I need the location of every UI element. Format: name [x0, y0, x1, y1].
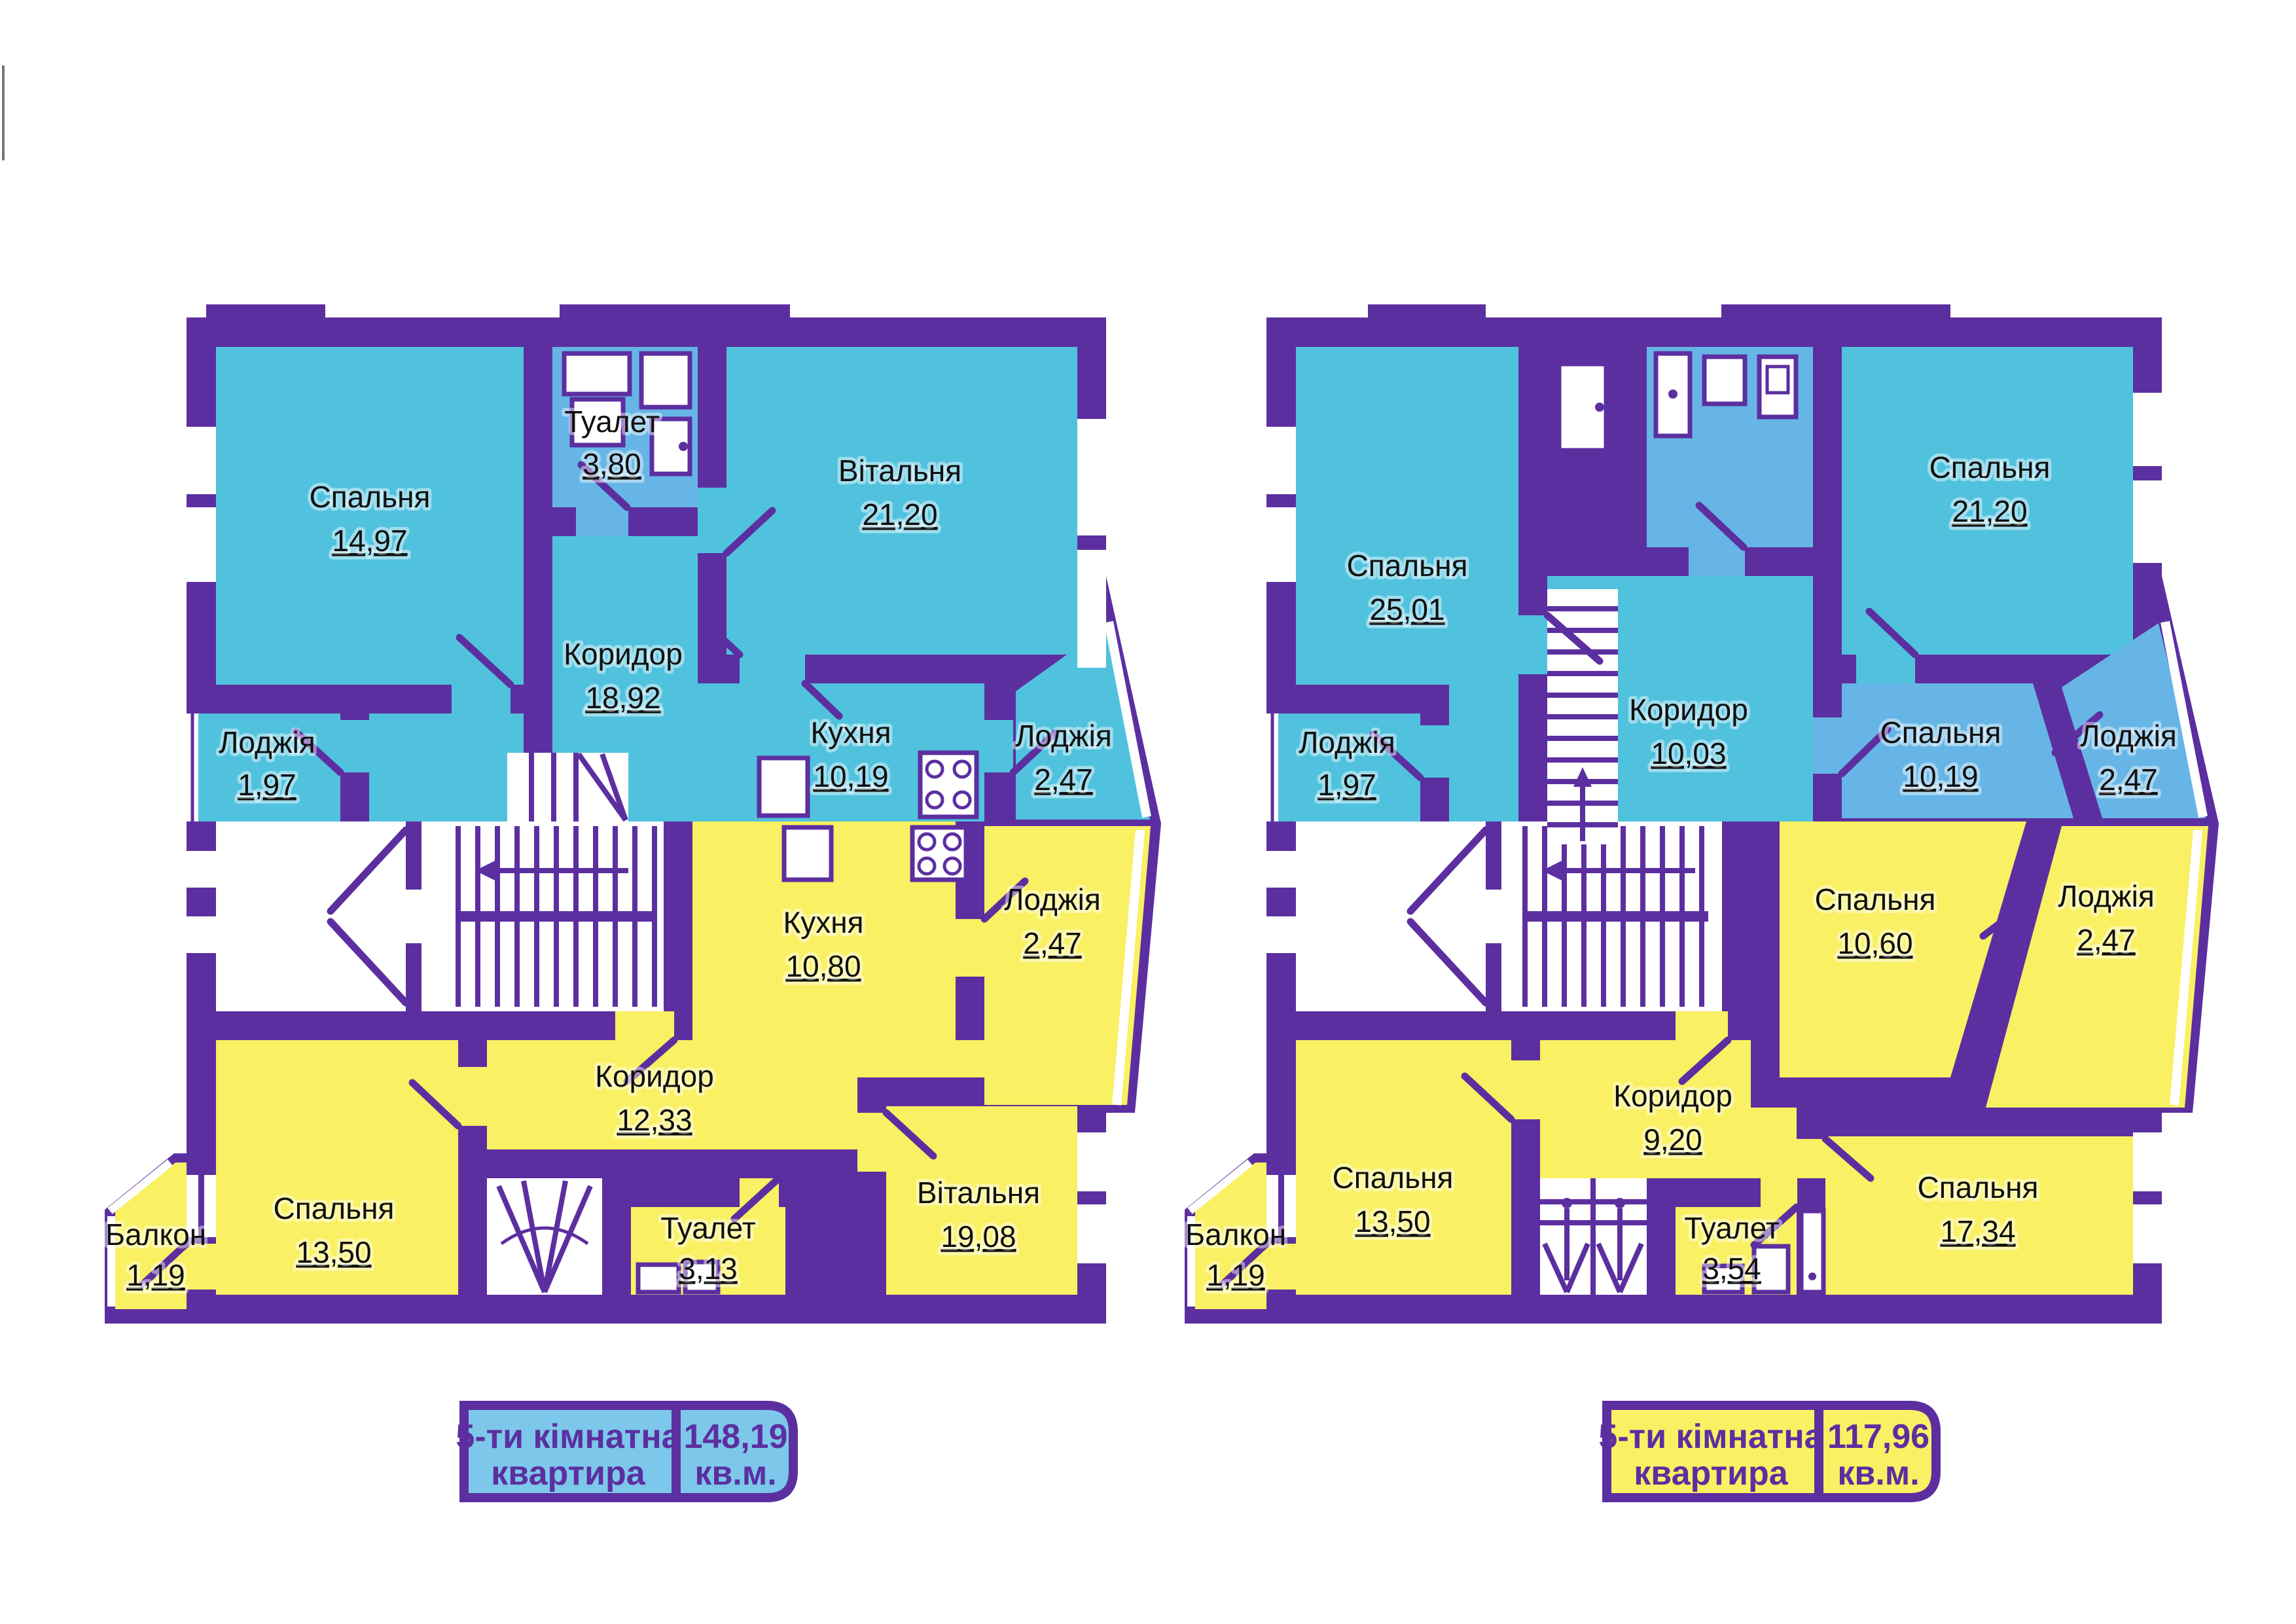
left-duplex-stair-upper [507, 753, 628, 821]
room-area: 14,97 [332, 524, 407, 558]
room-label: Спальня [310, 480, 431, 514]
room-label: Коридор [1613, 1079, 1732, 1113]
room-label: Лоджія [219, 725, 315, 759]
room-area: 10,19 [813, 759, 888, 793]
room-label: Лоджія [1299, 725, 1395, 759]
room-label: Лоджія [2080, 719, 2177, 753]
room-label: Спальня [1815, 882, 1936, 916]
room-area: 10,19 [1903, 759, 1978, 793]
room-area: 17,34 [1940, 1214, 2015, 1248]
room-bedroom-10-19 [1842, 683, 2073, 818]
scan-artifact [2, 65, 5, 160]
room-area: 21,20 [1952, 494, 2027, 528]
room-label: Спальня [274, 1191, 395, 1225]
left-common-stairwell [187, 821, 664, 1011]
badge-unit: кв.м. [694, 1454, 776, 1492]
room-area: 2,47 [1023, 926, 1082, 960]
right-plan: Спальня 25,01 Коридор 10,03 Спальня 21,2… [1185, 304, 2219, 1498]
badge-area: 148,19 [683, 1418, 787, 1456]
room-label: Спальня [1929, 450, 2051, 484]
room-area: 12,33 [617, 1103, 692, 1137]
sink-icon [641, 353, 690, 407]
room-area: 3,54 [1702, 1252, 1761, 1286]
room-area: 13,50 [1355, 1204, 1430, 1238]
left-plan: Спальня 14,97 Туалет 3,80 Вітальня 21,20… [105, 304, 1161, 1498]
left-winder-stair-lower [487, 1178, 602, 1295]
badge-area: 117,96 [1827, 1418, 1929, 1456]
room-label: Спальня [1333, 1161, 1454, 1195]
sink-icon [784, 827, 831, 880]
toilet-bowl-icon [638, 1265, 679, 1292]
room-area: 10,60 [1837, 926, 1912, 960]
right-apartment-badge: 5-ти кімнатна квартира 117,96 кв.м. [1598, 1405, 1936, 1498]
sink-icon [1704, 357, 1745, 404]
room-area: 1,97 [238, 768, 296, 802]
room-area: 19,08 [941, 1219, 1016, 1254]
handrail [458, 911, 655, 922]
room-area: 9,20 [1643, 1123, 1702, 1157]
room-area: 3,80 [583, 447, 641, 481]
room-label: Коридор [564, 637, 683, 671]
room-label: Спальня [1347, 549, 1468, 583]
room-area: 1,19 [1206, 1258, 1265, 1292]
handrail [1525, 911, 1708, 922]
toilet-tank-icon [564, 353, 630, 394]
room-label: Лоджія [1015, 719, 1112, 753]
badge-unit: кв.м. [1837, 1454, 1919, 1492]
badge-type-line1: 5-ти кімнатна [456, 1418, 681, 1456]
floor-plan-sheet: Спальня 14,97 Туалет 3,80 Вітальня 21,20… [0, 0, 2296, 1624]
room-area: 18,92 [585, 681, 660, 715]
room-label: Туалет [660, 1211, 756, 1245]
room-area: 10,03 [1651, 736, 1726, 770]
room-area: 21,20 [862, 497, 937, 532]
room-label: Вітальня [917, 1176, 1040, 1210]
room-label: Лоджія [2058, 879, 2155, 913]
room-label: Туалет [564, 405, 660, 439]
room-area: 1,97 [1318, 768, 1376, 802]
room-label: Туалет [1684, 1211, 1780, 1245]
room-area: 2,47 [2099, 763, 2158, 797]
right-common-stairwell [1266, 821, 1722, 1011]
badge-type-line2: квартира [491, 1454, 646, 1492]
room-area: 2,47 [2077, 923, 2136, 957]
room-area: 10,80 [785, 949, 861, 983]
left-apartment-badge: 5-ти кімнатна квартира 148,19 кв.м. [456, 1405, 793, 1498]
room-label: Кухня [810, 715, 891, 749]
room-label: Коридор [1629, 693, 1748, 727]
room-label: Коридор [595, 1059, 714, 1093]
room-area: 13,50 [296, 1235, 371, 1269]
room-bedroom-14-97 [216, 347, 524, 685]
room-label: Лоджія [1004, 882, 1101, 916]
room-bedroom-25-01 [1296, 347, 1518, 685]
right-double-winder-stair [1540, 1178, 1647, 1295]
sink-icon [759, 758, 808, 816]
room-label: Балкон [105, 1218, 206, 1252]
room-label: Вітальня [838, 454, 961, 488]
room-area: 25,01 [1369, 592, 1444, 626]
badge-type-line1: 5-ти кімнатна [1598, 1418, 1823, 1456]
room-area: 3,13 [679, 1252, 738, 1286]
room-area: 2,47 [1034, 763, 1093, 797]
room-label: Кухня [783, 905, 863, 939]
floor-plans-canvas: Спальня 14,97 Туалет 3,80 Вітальня 21,20… [0, 0, 2296, 1624]
room-label: Балкон [1185, 1218, 1286, 1252]
badge-type-line2: квартира [1634, 1454, 1789, 1492]
room-area: 1,19 [126, 1258, 185, 1292]
room-label: Спальня [1918, 1170, 2039, 1204]
room-label: Спальня [1880, 715, 2001, 749]
